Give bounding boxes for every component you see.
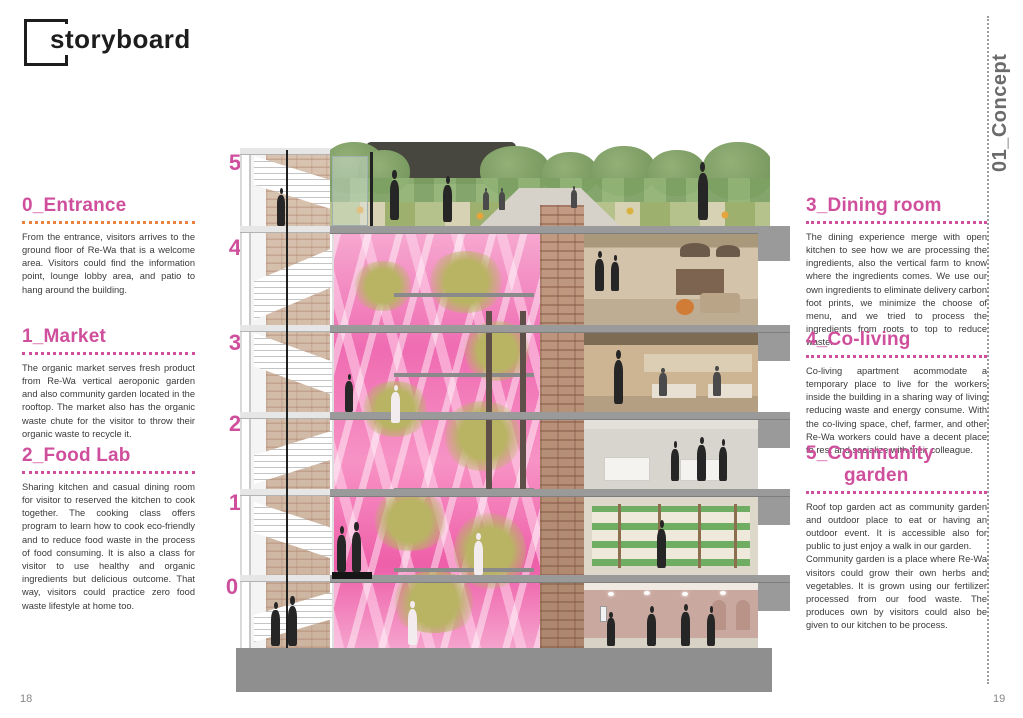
arched-window <box>736 600 750 630</box>
slab-edge-block <box>758 420 790 448</box>
balcony-platform <box>332 572 372 579</box>
entrance-lobby <box>584 582 758 648</box>
shelf-post <box>734 504 737 568</box>
dotted-rule <box>22 221 195 224</box>
dotted-rule <box>806 491 987 494</box>
rack-post <box>520 311 526 491</box>
farm-worker-figure <box>406 601 419 645</box>
storyboard-page: storyboard 01_Concept 18 19 0_Entrance F… <box>0 0 1023 718</box>
shelf-post <box>698 504 701 568</box>
dining-room <box>584 332 758 412</box>
person-figure <box>344 374 355 412</box>
vertical-farm <box>332 233 542 648</box>
slab-edge-block <box>758 233 790 261</box>
slab-edge-block <box>758 583 790 611</box>
dotted-rule <box>806 221 987 224</box>
tower-slab <box>240 325 336 332</box>
ceiling-light <box>608 592 614 596</box>
section-community-garden-title: 5_Community garden <box>806 443 987 487</box>
section-entrance: 0_Entrance From the entrance, visitors a… <box>22 195 195 297</box>
section-market: 1_Market The organic market serves fresh… <box>22 326 195 441</box>
glass-balustrade <box>332 156 368 226</box>
page-number-right: 19 <box>993 693 1005 705</box>
person-figure <box>696 162 710 220</box>
person-figure <box>570 186 578 208</box>
slab-edge-block <box>758 333 790 361</box>
person-figure <box>610 255 621 291</box>
grow-shelf <box>394 373 534 377</box>
page-title: storyboard <box>44 24 197 55</box>
chapter-label: 01_Concept <box>989 22 1021 172</box>
building-section-illustration <box>240 112 792 696</box>
floor-slab <box>330 226 790 234</box>
person-figure <box>680 604 692 646</box>
ceiling-light <box>644 591 650 595</box>
person-figure <box>658 368 668 396</box>
grow-shelf <box>394 568 534 572</box>
roof-post <box>370 152 373 226</box>
tower-slab <box>240 489 336 496</box>
person-figure <box>388 170 401 220</box>
person-figure <box>670 441 681 481</box>
sofa <box>700 293 740 313</box>
section-food-lab: 2_Food Lab Sharing kitchen and casual di… <box>22 445 195 613</box>
person-figure <box>276 188 287 226</box>
market <box>584 496 758 575</box>
rack-post <box>486 311 492 491</box>
floor-slab <box>330 575 790 583</box>
person-figure <box>286 596 299 646</box>
ceiling-light <box>682 592 688 596</box>
dotted-rule <box>22 471 195 474</box>
tower-slab <box>240 226 336 233</box>
food-lab <box>584 419 758 489</box>
section-food-lab-title: 2_Food Lab <box>22 445 195 467</box>
kitchen-island <box>604 457 650 481</box>
waiter-figure <box>612 350 625 404</box>
pouf <box>676 299 694 315</box>
plant-cluster <box>352 261 414 311</box>
shelf-post <box>618 504 621 568</box>
co-living-room <box>584 233 758 325</box>
tower-slab <box>240 148 336 155</box>
tower-slab <box>240 575 336 582</box>
section-community-garden: 5_Community garden Roof top garden act a… <box>806 443 987 633</box>
person-figure <box>350 522 363 572</box>
person-figure <box>594 251 606 291</box>
section-dining-room: 3_Dining room The dining experience merg… <box>806 195 987 350</box>
page-number-left: 18 <box>20 693 32 705</box>
section-food-lab-body: Sharing kitchen and casual dining room f… <box>22 481 195 613</box>
person-figure <box>336 526 348 572</box>
floor-slab <box>330 489 790 497</box>
shopper-figure <box>656 520 668 568</box>
facade-colonnade <box>240 148 266 648</box>
lamp-shade <box>716 245 740 257</box>
farm-worker-figure <box>390 385 402 423</box>
dotted-rule <box>22 352 195 355</box>
section-co-living: 4_Co-living Co-living apartment acommoda… <box>806 329 987 457</box>
person-figure <box>646 606 658 646</box>
person-figure <box>442 176 454 222</box>
tower-slab <box>240 412 336 419</box>
produce-shelves <box>592 506 750 566</box>
plant-cluster <box>426 251 506 313</box>
plant-cluster <box>370 491 450 551</box>
lamp-shade <box>680 243 710 257</box>
person-figure <box>606 612 616 646</box>
section-entrance-title: 0_Entrance <box>22 195 195 217</box>
farm-worker-figure <box>472 533 485 575</box>
section-market-body: The organic market serves fresh product … <box>22 362 195 441</box>
person-figure <box>712 366 722 396</box>
person-figure <box>718 439 729 481</box>
dotted-rule <box>806 355 987 358</box>
person-figure <box>270 602 282 646</box>
ceiling-light <box>720 591 726 595</box>
person-figure <box>482 188 490 210</box>
slab-edge-block <box>758 497 790 525</box>
section-co-living-title: 4_Co-living <box>806 329 987 351</box>
section-dining-room-title: 3_Dining room <box>806 195 987 217</box>
person-figure <box>498 188 506 210</box>
sideboard <box>676 269 724 295</box>
floor-slab <box>330 325 790 333</box>
section-market-title: 1_Market <box>22 326 195 348</box>
foundation-block <box>236 648 772 692</box>
grow-shelf <box>394 293 534 297</box>
section-community-garden-body: Roof top garden act as community garden … <box>806 501 987 633</box>
person-figure <box>696 437 708 481</box>
section-entrance-body: From the entrance, visitors arrives to t… <box>22 231 195 297</box>
person-figure <box>706 606 717 646</box>
